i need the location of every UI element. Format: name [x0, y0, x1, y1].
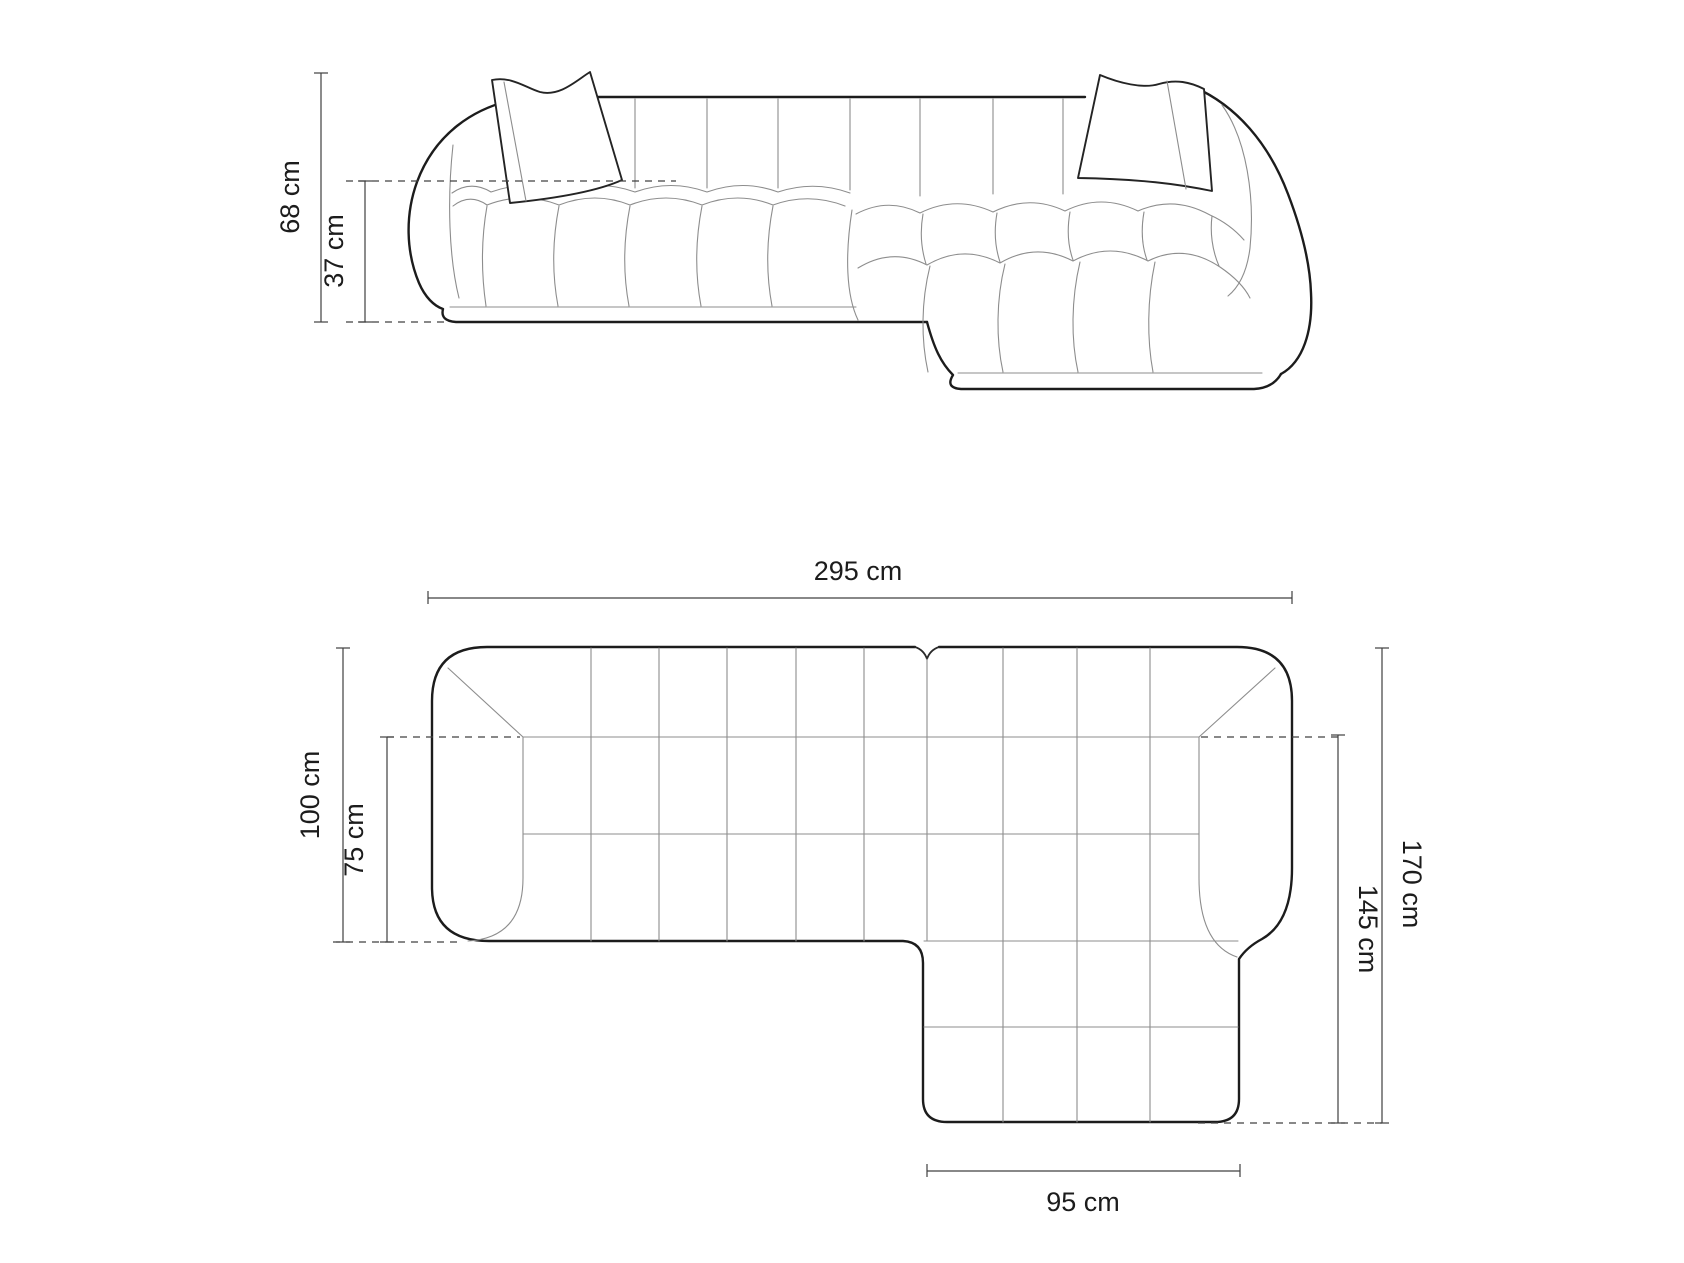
left-arm-inner-contour — [450, 145, 459, 298]
top-view-outline — [432, 647, 1292, 1122]
width-label: 295 cm — [814, 556, 903, 586]
left-pillow-outline — [492, 72, 622, 203]
total-depth-label: 170 cm — [1397, 840, 1427, 929]
top-view-dimensions: 295 cm 100 cm 75 cm 170 cm 145 cm 95 cm — [295, 556, 1427, 1217]
depth-dimension-line — [336, 648, 350, 942]
chaise-tuft-connectors — [921, 212, 1219, 266]
height-label: 68 cm — [275, 160, 305, 234]
right-module-cushion-seams — [1003, 648, 1150, 1122]
front-view: 68 cm 37 cm — [275, 72, 1311, 389]
left-pillow — [492, 72, 622, 203]
right-pillow — [1078, 75, 1212, 191]
right-arm-inner-contour — [1222, 105, 1251, 296]
top-view: 295 cm 100 cm 75 cm 170 cm 145 cm 95 cm — [295, 556, 1427, 1217]
seat-height-label: 37 cm — [319, 214, 349, 288]
sofa-top-drawing — [432, 647, 1292, 1122]
right-pillow-outline — [1078, 75, 1212, 191]
chaise-front-edge — [927, 322, 1281, 389]
chaise-mid-wave — [858, 251, 1250, 298]
width-dimension-line — [428, 591, 1292, 604]
right-arm-inner-edge — [1199, 737, 1237, 957]
seat-height-dimension-line — [358, 181, 372, 322]
sofa-dimension-diagram: 68 cm 37 cm — [0, 0, 1684, 1263]
chaise-width-dimension-line — [927, 1164, 1240, 1177]
chaise-top-wave — [856, 202, 1244, 240]
front-view-dimensions: 68 cm 37 cm — [275, 73, 676, 322]
left-arm-inner-edge — [468, 737, 523, 941]
chaise-width-label: 95 cm — [1046, 1187, 1120, 1217]
sofa-front-drawing — [409, 72, 1312, 389]
chaise-front-cushion-seams — [923, 262, 1155, 372]
seat-depth-label: 75 cm — [339, 803, 369, 877]
chaise-depth-label: 145 cm — [1353, 885, 1383, 974]
sofa-dimension-diagram-page: 68 cm 37 cm — [0, 0, 1684, 1263]
chaise-left-cushion-edge — [848, 210, 858, 320]
seat-depth-dimension-line — [380, 737, 394, 942]
left-arm-diagonal — [448, 668, 523, 737]
backrest-channel-seams — [635, 99, 1063, 196]
left-module-cushion-seams — [591, 648, 864, 941]
chaise-depth-dimension-line — [1331, 735, 1345, 1123]
seat-front-cushion-seams — [482, 206, 773, 306]
depth-label: 100 cm — [295, 751, 325, 840]
module-split-notch — [915, 647, 939, 659]
right-arm-diagonal — [1199, 668, 1275, 737]
